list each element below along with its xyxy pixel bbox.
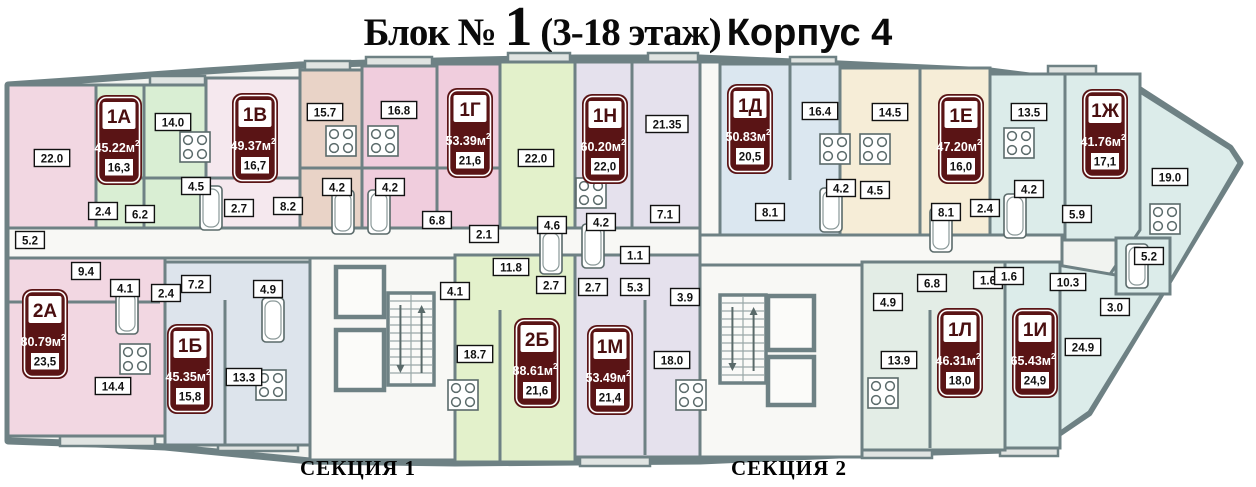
apartment-number: 1Г [459,100,481,121]
room-area-label: 4.2 [827,180,856,197]
stove-icon [820,134,850,164]
room-area-label: 2.7 [579,279,608,296]
staircase [720,295,766,383]
room-area-label: 7.1 [651,206,680,223]
stove-icon [368,126,398,156]
room-area-label: 4.2 [323,179,352,196]
svg-text:4.1: 4.1 [447,287,464,299]
apartment-badge-1Е: 1Е47.20м216,0 [937,94,984,184]
apartment-number: 1А [107,107,132,128]
apartment-total-area: 60.20м2 [581,138,627,154]
floor-plan-page: Блок № 1 (3-18 этаж)Корпус 4 22.014.04.5… [0,0,1256,487]
svg-text:4.6: 4.6 [544,221,560,233]
apartment-number: 1Ж [1091,101,1120,122]
apartment-living-area: 15,8 [179,392,202,404]
bathtub-icon [332,190,354,234]
room-area-label: 22.0 [34,150,69,167]
svg-text:11.8: 11.8 [500,263,522,275]
room-area-label: 4.9 [874,294,903,311]
room-area-label: 2.7 [225,200,254,217]
svg-text:4.9: 4.9 [880,298,896,310]
room [500,62,575,228]
room-area-label: 4.5 [182,178,211,195]
room-area-label: 4.2 [587,214,616,231]
apartment-number: 1Б [178,336,202,357]
room-area-label: 18.7 [457,346,492,363]
svg-text:24.9: 24.9 [1072,343,1094,355]
svg-text:4.1: 4.1 [117,284,134,296]
apartment-number: 1Н [593,106,617,127]
apartment-total-area: 45.35м2 [166,368,212,384]
room-area-label: 11.8 [493,259,528,276]
apartment-badge-1Л: 1Л46.31м218,0 [936,308,983,398]
apartment-total-area: 49.37м2 [231,137,277,153]
svg-text:2.7: 2.7 [231,204,247,216]
svg-text:10.3: 10.3 [1057,278,1079,290]
room-area-label: 1.6 [995,268,1024,285]
svg-text:14.4: 14.4 [102,382,125,394]
svg-text:5.3: 5.3 [627,283,643,295]
room-area-label: 22.0 [518,150,553,167]
bathtub-icon [262,298,284,342]
apartment-number: 1В [243,105,267,126]
apartment-number: 2А [33,301,58,322]
room-area-label: 2.4 [89,203,118,220]
svg-text:4.2: 4.2 [382,183,398,195]
apartment-living-area: 21,6 [526,386,548,398]
stove-icon [860,134,890,164]
apartment-badge-1Д: 1Д50.83м220,5 [726,84,773,174]
svg-text:13.3: 13.3 [233,373,255,385]
apartment-living-area: 21,6 [459,156,481,168]
svg-text:16.4: 16.4 [809,107,832,119]
elevator-shaft [336,330,384,390]
apartment-total-area: 41.76м2 [1081,133,1127,149]
room-area-label: 8.1 [932,204,961,221]
stove-icon [868,378,898,408]
apartment-badge-1Н: 1Н60.20м222,0 [581,94,628,184]
stove-icon [676,380,706,410]
svg-text:6.8: 6.8 [429,216,446,228]
room-area-label: 24.9 [1065,339,1100,356]
bathtub-icon [1004,194,1026,238]
room-area-label: 6.8 [423,212,452,229]
room-area-label: 2.7 [537,277,566,294]
room-area-label: 4.1 [111,280,140,297]
stove-icon [1150,204,1180,234]
section-2-label: СЕКЦИЯ 2 [731,456,847,481]
svg-text:1.6: 1.6 [980,276,996,288]
svg-text:6.2: 6.2 [132,210,148,222]
apartment-badge-1Ж: 1Ж41.76м217,1 [1081,89,1128,179]
apartment-total-area: 50.83м2 [726,128,772,144]
svg-text:3.0: 3.0 [1107,303,1123,315]
svg-text:7.1: 7.1 [657,210,674,222]
room-area-label: 4.2 [376,179,405,196]
room-area-label: 2.4 [152,285,181,302]
room-area-label: 4.5 [861,182,890,199]
room-area-label: 4.1 [441,283,470,300]
room-area-label: 5.2 [16,232,45,249]
svg-text:4.5: 4.5 [188,182,205,194]
room-area-label: 10.3 [1050,274,1085,291]
apartment-living-area: 18,0 [949,376,971,388]
room-area-label: 5.3 [621,279,650,296]
elevator-shaft [336,267,384,317]
room-area-label: 8.1 [756,204,785,221]
room-area-label: 2.1 [470,226,499,243]
elevator-shaft [768,296,814,350]
apartment-number: 1Е [949,106,972,127]
apartment-badge-1Г: 1Г53.39м221,6 [446,88,493,178]
apartment-living-area: 16,3 [108,163,130,175]
svg-text:1.6: 1.6 [1001,272,1017,284]
room-area-label: 8.2 [274,198,303,215]
svg-text:18.7: 18.7 [464,350,486,362]
room-area-label: 13.5 [1011,104,1046,121]
svg-text:7.2: 7.2 [188,280,204,292]
svg-text:9.4: 9.4 [78,267,95,279]
svg-text:3.9: 3.9 [677,293,693,305]
room-area-label: 21.35 [646,116,688,133]
apartment-living-area: 23,5 [34,357,57,369]
apartment-living-area: 20,5 [739,152,762,164]
room-area-label: 5.9 [1063,206,1092,223]
apartment-badge-2А: 2А80.79м223,5 [21,289,68,379]
room-area-label: 16.8 [381,102,416,119]
svg-text:8.1: 8.1 [762,208,779,220]
building-plan-svg: 22.014.04.52.46.25.29.44.114.42.47.24.91… [0,0,1256,487]
svg-text:14.5: 14.5 [879,108,902,120]
stove-icon [120,344,150,374]
apartment-total-area: 47.20м2 [937,138,983,154]
svg-text:4.2: 4.2 [329,183,345,195]
room-area-label: 14.0 [155,114,190,131]
svg-text:22.0: 22.0 [525,154,547,166]
svg-text:19.0: 19.0 [1159,173,1181,185]
apartment-number: 1Л [948,320,972,341]
svg-text:4.5: 4.5 [867,186,884,198]
apartment-badge-1В: 1В49.37м216,7 [231,93,278,183]
svg-text:5.2: 5.2 [1141,252,1157,264]
apartment-living-area: 17,1 [1094,157,1117,169]
stove-icon [180,132,210,162]
svg-text:5.2: 5.2 [22,236,38,248]
svg-text:5.9: 5.9 [1069,210,1085,222]
room-area-label: 6.8 [918,275,947,292]
svg-text:21.35: 21.35 [653,120,682,132]
svg-text:2.7: 2.7 [585,283,601,295]
room-area-label: 16.4 [802,103,837,120]
apartment-living-area: 24,9 [1024,376,1046,388]
room-area-label: 3.0 [1101,299,1130,316]
apartment-living-area: 21,4 [599,393,622,405]
apartment-total-area: 65.43м2 [1011,352,1057,368]
room-area-label: 13.9 [881,352,916,369]
room-area-label: 4.2 [1015,181,1044,198]
svg-text:22.0: 22.0 [41,154,63,166]
stove-icon [448,380,478,410]
room-area-label: 18.0 [654,352,689,369]
svg-text:16.8: 16.8 [388,106,411,118]
apartment-total-area: 53.39м2 [446,132,492,148]
room-area-label: 9.4 [72,263,101,280]
room [700,62,720,235]
svg-text:8.2: 8.2 [280,202,296,214]
room-area-label: 14.5 [872,104,907,121]
room-area-label: 7.2 [182,276,211,293]
svg-text:2.1: 2.1 [476,230,493,242]
apartment-badge-2Б: 2Б88.61м221,6 [513,318,560,408]
apartment-badge-1И: 1И65.43м224,9 [1011,308,1058,398]
svg-text:1.1: 1.1 [627,251,644,263]
bathtub-icon [540,230,562,274]
apartment-number: 1Д [738,96,763,117]
apartment-badge-1Б: 1Б45.35м215,8 [166,324,213,414]
room-area-label: 19.0 [1152,169,1187,186]
svg-text:4.2: 4.2 [593,218,609,230]
svg-text:15.7: 15.7 [314,108,336,120]
svg-text:2.4: 2.4 [158,289,175,301]
apartment-number: 2Б [525,330,549,351]
stove-icon [1004,128,1034,158]
room-area-label: 5.2 [1135,248,1164,265]
room-area-label: 3.9 [671,289,700,306]
svg-text:18.0: 18.0 [661,356,683,368]
apartment-total-area: 46.31м2 [936,352,982,368]
stove-icon [326,126,356,156]
svg-text:2.4: 2.4 [977,204,994,216]
apartment-badge-1М: 1М53.49м221,4 [586,325,633,415]
apartment-living-area: 16,0 [950,162,972,174]
svg-text:14.0: 14.0 [162,118,184,130]
apartment-total-area: 88.61м2 [513,362,559,378]
apartment-living-area: 16,7 [244,161,266,173]
svg-text:2.7: 2.7 [543,281,559,293]
apartment-number: 1М [597,337,623,358]
apartment-total-area: 53.49м2 [586,369,632,385]
apartment-total-area: 80.79м2 [21,333,67,349]
apartment-number: 1И [1023,320,1047,341]
apartment-total-area: 45.22м2 [95,139,141,155]
svg-text:8.1: 8.1 [938,208,955,220]
svg-text:4.2: 4.2 [833,184,849,196]
svg-text:2.4: 2.4 [95,207,112,219]
svg-text:13.5: 13.5 [1018,108,1041,120]
room-area-label: 13.3 [226,369,261,386]
room-area-label: 1.1 [621,247,650,264]
room-area-label: 6.2 [126,206,155,223]
room-area-label: 2.4 [971,200,1000,217]
room-area-label: 14.4 [95,378,130,395]
staircase [388,293,434,385]
svg-text:6.8: 6.8 [924,279,941,291]
svg-text:13.9: 13.9 [888,356,910,368]
elevator-shaft [768,357,814,405]
section-1-label: СЕКЦИЯ 1 [300,456,416,481]
room-area-label: 4.9 [254,281,283,298]
room-area-label: 4.6 [538,217,567,234]
svg-text:4.9: 4.9 [260,285,276,297]
room-area-label: 15.7 [307,104,342,121]
apartment-living-area: 22,0 [594,162,616,174]
apartment-badge-1А: 1А45.22м216,3 [95,95,142,185]
svg-text:4.2: 4.2 [1021,185,1037,197]
bathtub-icon [368,190,390,234]
